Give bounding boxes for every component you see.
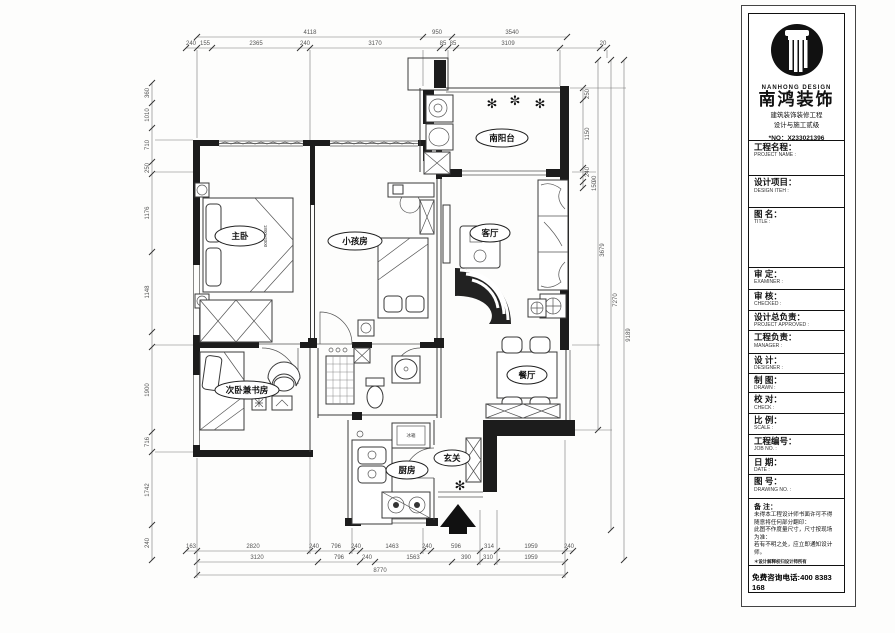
tb-row-scale: 比 例： SCALE : (749, 414, 844, 435)
svg-text:360: 360 (145, 87, 151, 98)
svg-text:✻: ✻ (535, 96, 546, 111)
svg-text:1176: 1176 (145, 206, 151, 220)
svg-text:240: 240 (351, 544, 362, 550)
tb-row-title: 图 名： TITLE : (749, 208, 844, 268)
nanhong-logo-icon (769, 22, 825, 78)
notes-title: 备 注： (754, 502, 844, 512)
svg-text:310: 310 (483, 555, 494, 561)
shower-icon (326, 348, 370, 404)
svg-text:冰箱: 冰箱 (407, 432, 416, 439)
svg-text:240: 240 (422, 544, 433, 550)
svg-text:710: 710 (145, 139, 151, 150)
company-cert-line1: 建筑装饰装修工程 (749, 112, 844, 120)
tb-row-drawing-no: 图 号： DRAWING NO. : (749, 475, 844, 499)
svg-text:✼: ✼ (510, 93, 521, 108)
company-name-cn: 南鸿装饰 (749, 91, 844, 110)
svg-text:314: 314 (484, 544, 495, 550)
svg-text:客厅: 客厅 (480, 228, 499, 238)
floor-plan: 4118 950 3540 240 155 2365 240 3170 85 8… (0, 0, 745, 633)
svg-text:2820: 2820 (246, 544, 260, 550)
room-label-study: 次卧兼书房 (215, 381, 279, 399)
fridge-icon: 冰箱 (392, 423, 430, 448)
wardrobe-master-icon (200, 300, 272, 342)
toilet-icon (366, 378, 384, 408)
svg-text:1463: 1463 (385, 544, 399, 550)
svg-text:240: 240 (309, 544, 320, 550)
svg-text:次卧兼书房: 次卧兼书房 (226, 385, 269, 395)
svg-text:240: 240 (145, 537, 151, 548)
svg-text:餐厅: 餐厅 (517, 370, 536, 380)
plants-icon: ✻ ✼ ✻ (487, 93, 546, 111)
svg-text:4118: 4118 (304, 30, 318, 36)
svg-text:163: 163 (186, 544, 197, 550)
svg-text:1150: 1150 (585, 127, 591, 141)
tb-row-designer: 设 计： DESIGNER : (749, 354, 844, 374)
svg-text:240: 240 (186, 41, 197, 47)
svg-text:240: 240 (564, 544, 575, 550)
svg-text:1900: 1900 (145, 383, 151, 397)
svg-text:1959: 1959 (524, 555, 538, 561)
svg-text:950: 950 (432, 30, 443, 36)
svg-text:390: 390 (461, 555, 472, 561)
notes-small-line: ＊设计解释权归设计师所有 (754, 559, 844, 565)
svg-text:3170: 3170 (368, 41, 382, 47)
stove-icon (382, 492, 430, 518)
svg-text:✻: ✻ (455, 478, 466, 493)
svg-text:小孩房: 小孩房 (341, 236, 368, 246)
hotline-phone: 免费咨询电话:400 8383 168 (749, 566, 844, 592)
tb-row-project-approved: 设计总负责： PROJECT APPROVED : (749, 311, 844, 332)
room-label-kitchen: 厨房 (386, 461, 428, 479)
svg-text:1800x2000: 1800x2000 (263, 225, 268, 248)
drawing-sheet: 4118 950 3540 240 155 2365 240 3170 85 8… (0, 0, 895, 633)
bed-kids-icon (358, 238, 428, 336)
svg-text:716: 716 (145, 436, 151, 447)
tv-cabinet-icon (443, 205, 450, 263)
tb-row-examiner: 审 定： EXAMINER : (749, 268, 844, 290)
svg-text:3120: 3120 (250, 555, 264, 561)
svg-text:85: 85 (450, 41, 457, 47)
svg-text:1959: 1959 (524, 544, 538, 550)
svg-text:✻: ✻ (487, 96, 498, 111)
svg-text:150: 150 (592, 180, 598, 191)
room-label-living: 客厅 (470, 224, 510, 242)
svg-text:3109: 3109 (501, 41, 515, 47)
tb-row-date: 日 期： DATE : (749, 456, 844, 476)
wardrobe-kids-icon (420, 200, 434, 234)
tb-row-project-name: 工程名程： PROJECT NAME : (749, 141, 844, 176)
dimension-chain-top: 4118 950 3540 240 155 2365 240 3170 85 8… (183, 30, 610, 141)
svg-text:1010: 1010 (145, 108, 151, 122)
dimension-chain-right: 250 1150 240 90 150 3679 7270 9189 (570, 57, 632, 563)
tb-row-job-no: 工程编号： JOB NO. : (749, 435, 844, 456)
tb-row-design-item: 设计项目： DESIGN ITEH : (749, 176, 844, 208)
svg-text:1563: 1563 (406, 555, 420, 561)
sofa-icon (538, 180, 568, 318)
svg-text:3540: 3540 (505, 30, 519, 36)
svg-text:250: 250 (585, 88, 591, 99)
svg-text:1742: 1742 (145, 483, 151, 497)
svg-text:8770: 8770 (373, 568, 387, 574)
title-block: NANHONG DESIGN 南鸿装饰 建筑装饰装修工程 设计与施工贰级 *NO… (748, 13, 845, 593)
svg-text:85: 85 (440, 41, 447, 47)
svg-text:厨房: 厨房 (398, 465, 415, 475)
svg-text:9189: 9189 (626, 328, 632, 342)
tb-notes: 备 注： 未得本工程设计师书面许可不得 随意将任何部分翻印： 此图不作度量尺寸，… (749, 499, 844, 566)
rug-icon (455, 268, 511, 324)
tb-row-drawn: 制 图： DRAWN : (749, 374, 844, 394)
svg-text:南阳台: 南阳台 (489, 133, 515, 143)
basin-icon (392, 356, 420, 383)
svg-text:155: 155 (200, 41, 211, 47)
room-label-dining: 餐厅 (507, 366, 547, 384)
svg-text:240: 240 (362, 555, 373, 561)
svg-text:240: 240 (300, 41, 311, 47)
svg-text:250: 250 (145, 162, 151, 173)
svg-text:2365: 2365 (249, 41, 263, 47)
entry-arrow-icon (440, 504, 476, 534)
svg-text:20: 20 (600, 41, 607, 47)
dimension-chain-left: 360 1010 710 250 1176 1148 1900 716 1742… (145, 80, 193, 563)
washer-icon (424, 95, 453, 174)
svg-text:主卧: 主卧 (231, 231, 249, 241)
svg-text:1148: 1148 (145, 285, 151, 299)
svg-text:796: 796 (334, 555, 345, 561)
room-label-entry: 玄关 (434, 450, 470, 466)
svg-text:596: 596 (451, 544, 462, 550)
tb-row-check: 校 对： CHECK : (749, 393, 844, 414)
room-label-balcony: 南阳台 (476, 129, 528, 147)
svg-text:796: 796 (331, 544, 342, 550)
tb-row-checked: 审 核： CHECKED : (749, 290, 844, 311)
company-cert-line2: 设计与施工贰级 (749, 122, 844, 130)
svg-text:240: 240 (585, 166, 591, 177)
svg-text:玄关: 玄关 (443, 453, 461, 463)
svg-text:7270: 7270 (613, 293, 619, 307)
room-label-kids: 小孩房 (328, 232, 382, 250)
company-header: NANHONG DESIGN 南鸿装饰 建筑装饰装修工程 设计与施工贰级 *NO… (749, 14, 844, 141)
svg-text:3679: 3679 (600, 243, 606, 257)
tb-row-manager: 工程负责： MANAGER : (749, 331, 844, 354)
